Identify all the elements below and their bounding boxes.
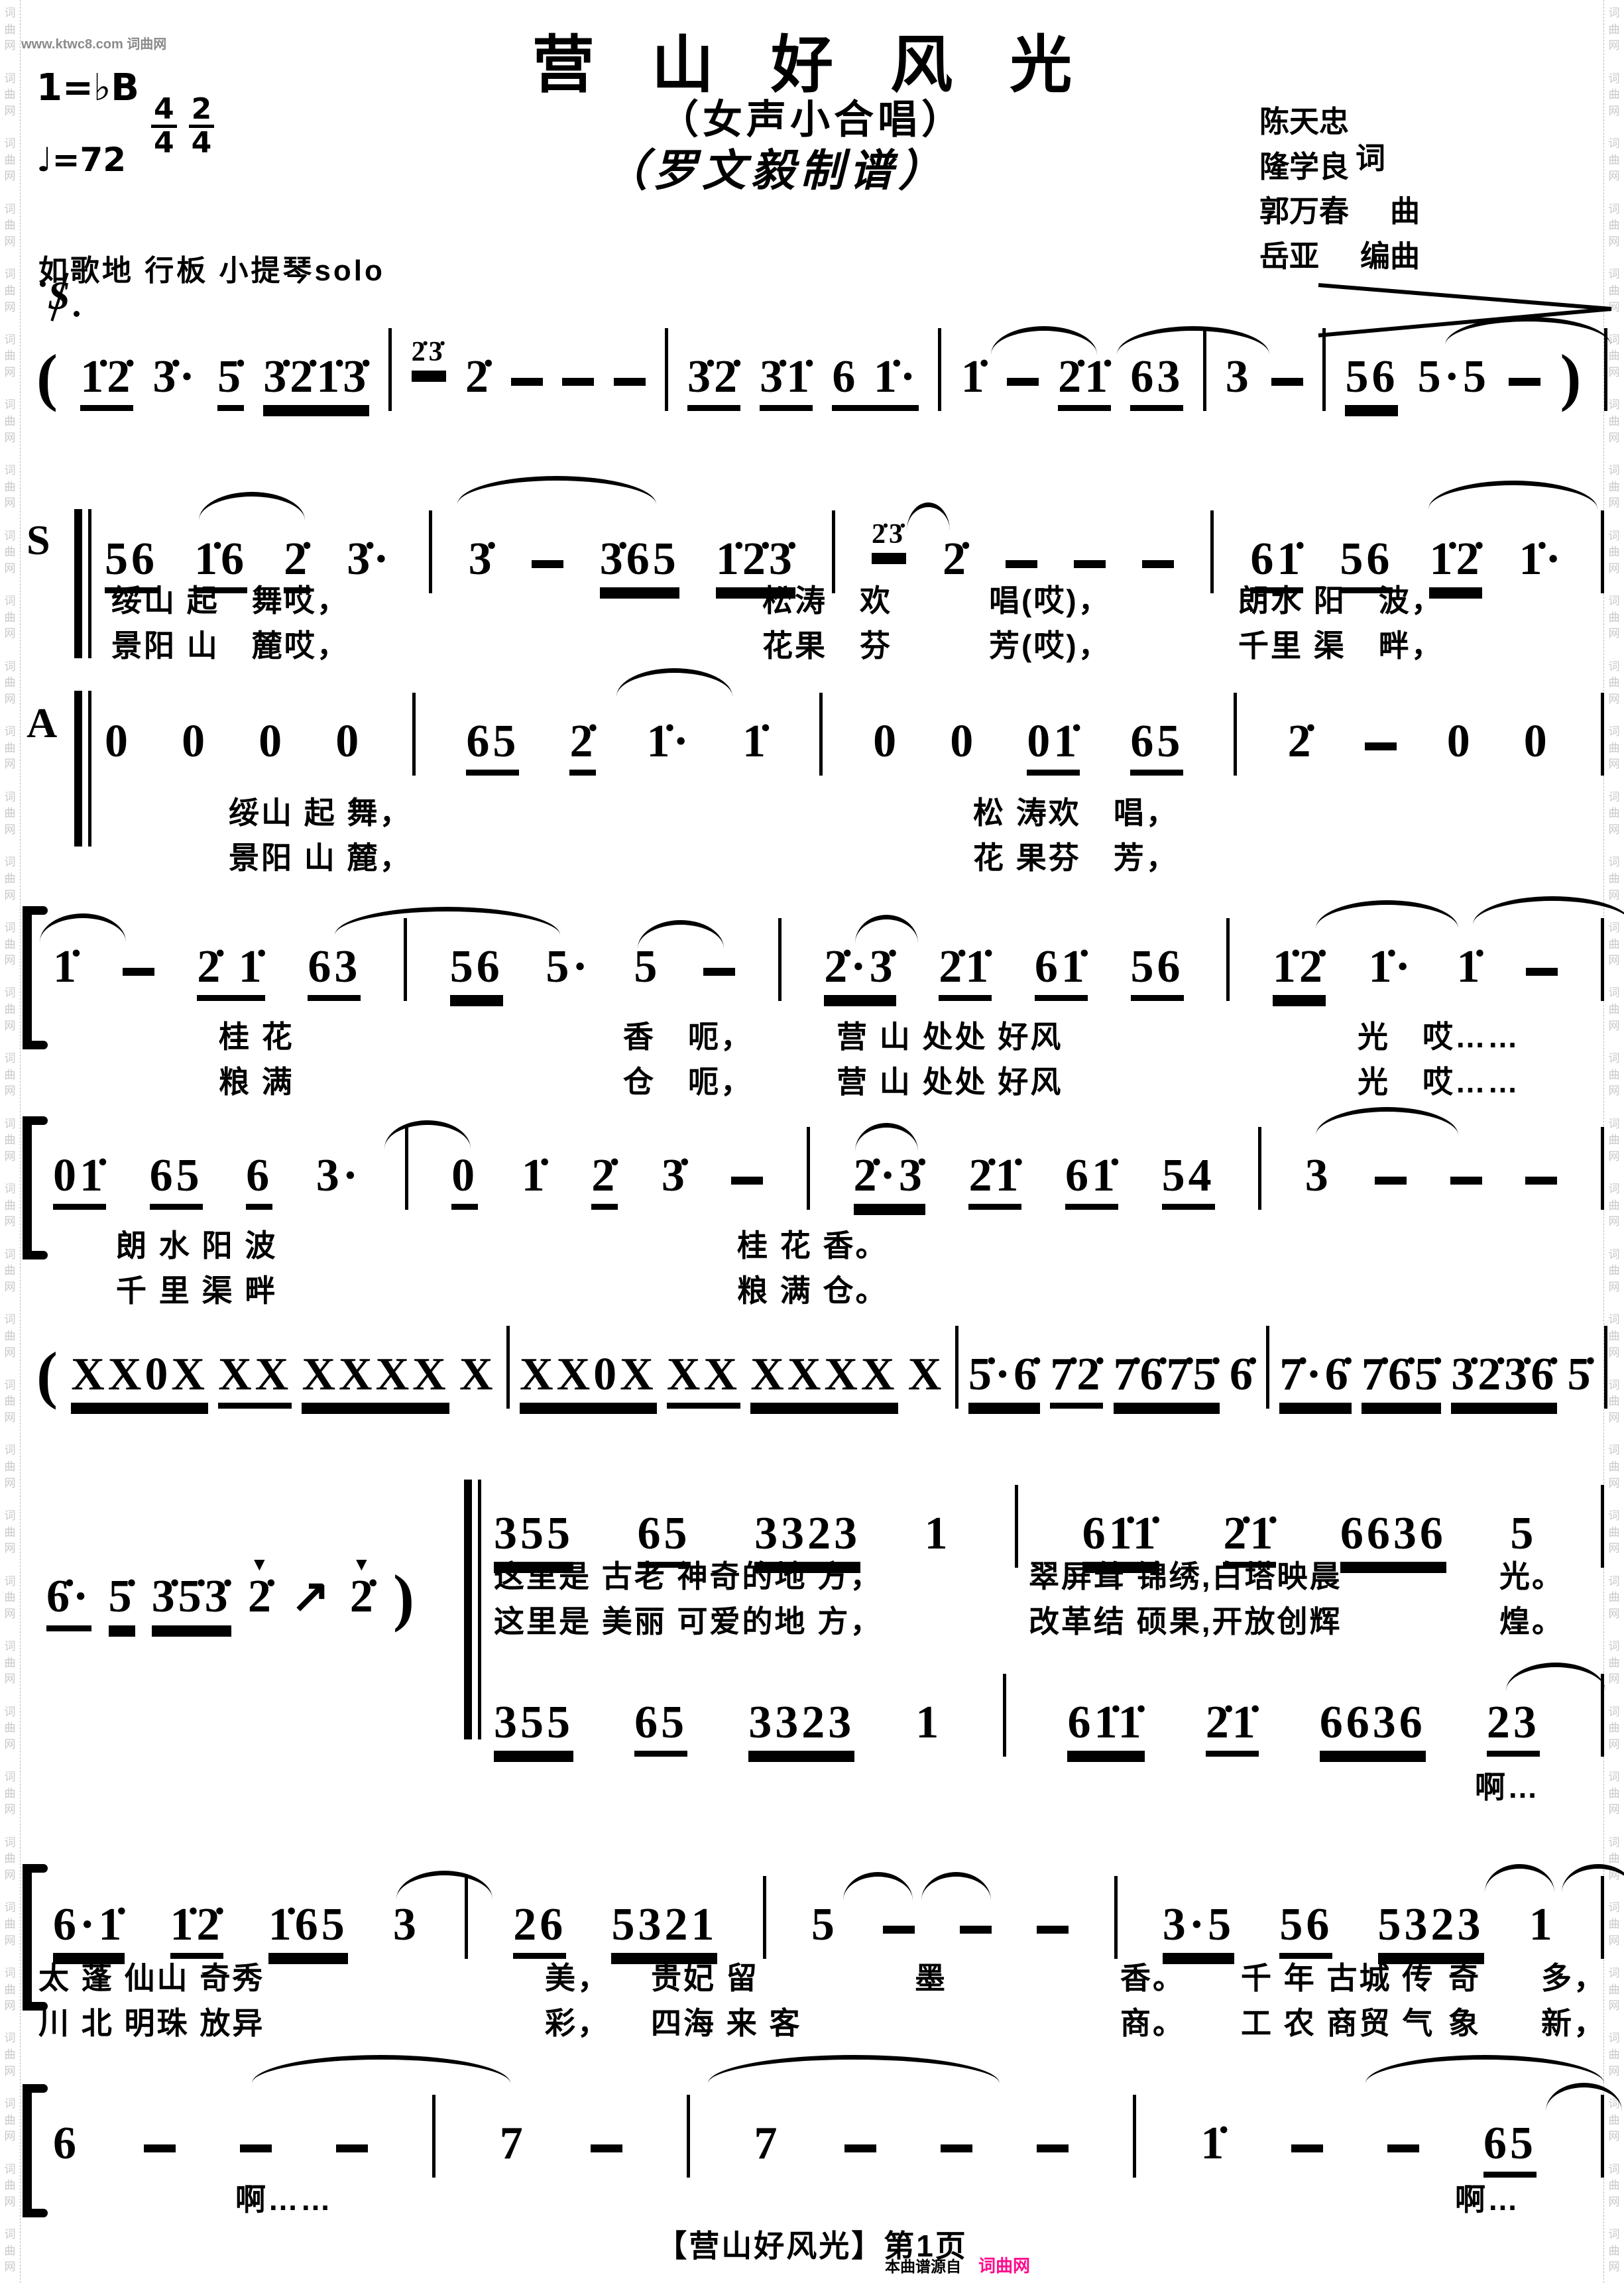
grace-note: 2̇3̇ [872, 520, 906, 559]
slur [457, 476, 656, 504]
barline [1133, 2095, 1136, 2178]
note-token: 65 [150, 1151, 203, 1210]
composer-name: 郭万春 [1259, 189, 1349, 234]
note-token: 2̇ [943, 535, 969, 594]
barline [465, 1876, 468, 1959]
lyric-segment: 这里是 美丽 可爱的地 方， [494, 1598, 882, 1641]
note-token: XX [667, 1350, 740, 1409]
lyric-segment: 香。 [1120, 1954, 1185, 1998]
note-token: 65 [1130, 717, 1183, 776]
note-token: 5̇ [109, 1572, 135, 1631]
note-token: 5·5 [1418, 353, 1489, 412]
note-token: 1̇ [53, 943, 80, 1002]
dash-rest [1509, 378, 1540, 386]
note-token: 3̇5̇3̇ [152, 1572, 231, 1631]
phrase-paren: ) [1560, 344, 1584, 411]
note-token: 61̇ [1035, 943, 1088, 1002]
note-token: 1̇65 [268, 1901, 348, 1960]
lyric-segment: 这里是 古老 神奇的地 方， [494, 1552, 882, 1596]
lyric-segment: 贵妃 留 [651, 1954, 759, 1998]
barline [819, 693, 823, 776]
note-token: 2̇1̇ [968, 1151, 1021, 1210]
note-token: 6 [246, 1151, 272, 1210]
arranger-role: 编曲 [1360, 234, 1420, 279]
source-prefix: 本曲谱源自 [885, 2258, 961, 2275]
music-line-interlude-end: 6̇·5̇3̇5̇3̇2̇↗2̇̇) [46, 1564, 418, 1631]
note-token: 3̇· [152, 353, 198, 412]
tempo-marking: ♩=72 [36, 141, 126, 179]
lyric-segment: 啊…… [235, 2176, 333, 2219]
lyric-segment: 改革结 硕果,开放创辉 [1029, 1598, 1342, 1641]
barline [1601, 1485, 1604, 1568]
note-token: 61̇1̇ [1067, 1698, 1144, 1757]
note-token: XX [218, 1350, 292, 1409]
note-token: 63 [1130, 353, 1183, 412]
system-bracket-s [74, 509, 91, 658]
barline [412, 693, 416, 776]
dash-rest [1271, 378, 1303, 386]
music-line-soprano-2: 1̇2̇ 1̇63565·52̇·3̇2̇1̇61̇561̇2̇1̇·1̇ [53, 918, 1604, 1001]
dash-rest [240, 2144, 272, 2152]
barline [1601, 1674, 1604, 1757]
note-token: 6·1̇ [53, 1901, 125, 1960]
barline [432, 2095, 435, 2178]
dash-rest [844, 2144, 876, 2152]
lyric-segment: 松 涛欢 唱， [973, 789, 1179, 833]
note-token: 7 [500, 2119, 526, 2178]
note-token: 5̇ [217, 353, 244, 412]
barline [388, 328, 392, 411]
note-token: ↗ [291, 1572, 333, 1631]
lyric-segment: 光 哎…… [1358, 1013, 1520, 1057]
note-token: 3̇1̇ [760, 353, 813, 412]
note-token: XX0X [71, 1350, 208, 1409]
dash-rest [532, 560, 563, 568]
barline [1601, 918, 1604, 1001]
note-token: XXXX [302, 1350, 449, 1409]
lyric-segment: 千 里 渠 畔 [116, 1267, 277, 1311]
segno-icon: S [41, 273, 81, 322]
lyric-segment: 绥山 起 舞哎， [111, 577, 349, 620]
note-token: 5323 [1378, 1901, 1484, 1960]
lyric-segment: 翠屏耸 锦绣,白塔映晨 [1029, 1552, 1342, 1596]
note-token: 1̇· [1368, 943, 1413, 1002]
segno-letter: S [48, 273, 70, 319]
dash-rest [1387, 2144, 1419, 2152]
note-token: 2̇ [248, 1572, 274, 1631]
dash-rest [144, 2144, 176, 2152]
lyric-segment: 芳(哎)， [989, 622, 1111, 666]
note-token: 23 [1487, 1698, 1540, 1757]
lyric-segment: 景阳 山 麓哎， [111, 622, 349, 666]
note-token: 7 [754, 2119, 781, 2178]
dash-rest [591, 2144, 622, 2152]
barline [1015, 1485, 1018, 1568]
note-token: 6̇ [1230, 1350, 1256, 1409]
dash-rest [562, 378, 594, 386]
note-token: X [459, 1350, 496, 1409]
arranger-name: 岳亚 [1259, 234, 1319, 279]
note-token: 7̇6̇5̇ [1362, 1350, 1441, 1409]
note-token: 5̇·6̇ [968, 1350, 1040, 1409]
barline [1114, 1876, 1118, 1959]
expression-marking: 如歌地 行板 小提琴solo [38, 247, 385, 289]
lyric-segment: 象 [1448, 1999, 1481, 2043]
note-token: 1 [925, 1509, 951, 1568]
note-token: 2̇1̇ [1206, 1698, 1259, 1757]
note-token: 3323 [748, 1698, 854, 1757]
lyric-segment: 川 北 明珠 放异 [38, 1999, 264, 2043]
grace-note: 2̇3̇ [412, 337, 446, 377]
slur [252, 2055, 510, 2083]
phrase-paren: ( [36, 1342, 61, 1409]
note-token: 2̇ [591, 1151, 618, 1210]
note-token: 65 [634, 1698, 687, 1757]
barline [763, 1876, 766, 1959]
source-brand: 词曲网 [978, 2256, 1030, 2276]
lyric-segment: 彩， [545, 1999, 610, 2043]
note-token: 2̇ 1̇ [197, 943, 265, 1002]
system-brace [23, 2089, 49, 2212]
note-token: 56 [450, 943, 503, 1002]
note-token: XXXX [750, 1350, 898, 1409]
phrase-paren: ) [393, 1564, 418, 1631]
left-watermark-strip: 词 曲 网 词 曲 网 词 曲 网 词 曲 网 词 曲 网 词 曲 网 词 曲 … [0, 0, 21, 2283]
lyric-segment: 煌。 [1499, 1598, 1564, 1641]
lyric-segment: 新， [1541, 1999, 1606, 2043]
note-token: 56 [1131, 943, 1184, 1002]
note-token: 54 [1162, 1151, 1215, 1210]
note-token: 0 [1447, 717, 1474, 776]
dash-rest [960, 1926, 992, 1934]
note-token: 1̇ [961, 353, 988, 412]
segno-dot [40, 281, 46, 287]
dash-rest [1291, 2144, 1323, 2152]
note-token: 3̇ [662, 1151, 688, 1210]
note-token: 0 [182, 717, 208, 776]
lyric-segment: 朗水 阳 波， [1238, 577, 1444, 620]
page-footer-label: 【营山好风光】第1页 [0, 2222, 1624, 2266]
barline [1003, 1674, 1006, 1757]
lyric-segment: 桂 花 [219, 1013, 294, 1057]
note-token: 2̇̇ [350, 1572, 377, 1631]
music-line-verse-c: 6·1̇1̇2̇1̇65326532153·55653231 [53, 1876, 1604, 1959]
note-token: 6636 [1340, 1509, 1446, 1568]
barline [687, 2095, 690, 2178]
lyric-segment: 啊… [1455, 2176, 1520, 2219]
barline [778, 918, 782, 1001]
note-token: 7̇6̇7̇5̇ [1114, 1350, 1220, 1409]
dash-rest [941, 2144, 972, 2152]
note-token: 2̇ [465, 353, 492, 412]
barline [429, 510, 432, 593]
phrase-paren: ( [36, 344, 61, 411]
dash-rest [1074, 560, 1106, 568]
lyric-segment: 工 农 商贸 气 [1241, 1999, 1434, 2043]
time-signature-1: 44 [151, 94, 177, 158]
dash-rest [1037, 1926, 1069, 1934]
lyricist-2: 隆学良 [1259, 145, 1349, 190]
note-token: 7̇·6̇ [1279, 1350, 1351, 1409]
source-credit: 本曲谱源自词曲网 [885, 2253, 1030, 2277]
barline [1604, 328, 1607, 411]
dash-rest [1375, 1177, 1407, 1185]
lyric-segment: 朗 水 阳 波 [116, 1222, 277, 1265]
note-token: 3·5 [1163, 1901, 1234, 1960]
barline [1226, 918, 1230, 1001]
note-token: 3̇2̇ [687, 353, 740, 412]
note-token: 1̇ [522, 1151, 548, 1210]
barline [955, 1326, 958, 1409]
note-token: 6 1̇· [832, 353, 919, 412]
note-token: 1̇2̇ [80, 353, 133, 412]
barline [1258, 1127, 1261, 1210]
lyricist-1: 陈天忠 [1259, 99, 1349, 145]
dash-rest [731, 1177, 763, 1185]
note-token: 355 [494, 1698, 573, 1757]
note-token: 5 [634, 943, 660, 1002]
barline [1601, 1876, 1604, 1959]
barline [1601, 2095, 1604, 2178]
lyric-segment: 光。 [1499, 1552, 1564, 1596]
lyric-segment: 千里 渠 畔， [1238, 622, 1444, 666]
voice-label-s: S [27, 516, 50, 565]
lyric-segment: 营 山 处处 好风 [837, 1013, 1063, 1057]
voice-label-a: A [27, 699, 57, 748]
note-token: 1 [1529, 1901, 1556, 1960]
dash-rest [1007, 378, 1039, 386]
note-token: 0 [1524, 717, 1550, 776]
barline [665, 328, 668, 411]
note-token: 3 [393, 1901, 420, 1960]
system-bracket-a [74, 691, 91, 847]
barline [404, 918, 407, 1001]
note-token: 3̇ [469, 535, 495, 594]
note-token: 26 [513, 1901, 566, 1960]
lyric-segment: 唱(哎)， [989, 577, 1111, 620]
lyric-segment: 花 果芬 芳， [973, 834, 1179, 878]
dash-rest [1037, 2144, 1069, 2152]
barline [1601, 1127, 1604, 1210]
segno-dot [74, 311, 80, 317]
barline [938, 328, 941, 411]
note-token: 2̇1̇ [939, 943, 992, 1002]
barline [1266, 1326, 1269, 1409]
lyric-segment: 多， [1541, 1954, 1606, 1998]
note-token: 65 [1483, 2119, 1537, 2178]
lyric-segment: 啊… [1475, 1763, 1540, 1807]
note-token: 3 [1226, 353, 1252, 412]
credits-block: 陈天忠 隆学良 词 郭万春 曲 岳亚 编曲 [1259, 99, 1458, 278]
note-token: 1̇2̇ [1273, 943, 1326, 1002]
note-token: 2̇·3̇ [824, 943, 896, 1002]
lyric-segment: 粮 满 [219, 1058, 294, 1102]
music-line-verse-b: 355653323161̇1̇2̇1̇663623 [494, 1674, 1604, 1757]
dash-rest [336, 2144, 368, 2152]
music-line-intro: (1̇2̇3̇·5̇3̇2̇1̇3̇2̇3̇2̇3̇2̇3̇1̇6 1̇·1̇2… [36, 328, 1607, 411]
lyric-segment: 仓 呃， [623, 1058, 753, 1102]
note-token: 1̇ [1200, 2119, 1227, 2178]
note-token: 6636 [1320, 1698, 1426, 1757]
note-token: 3̇· [347, 535, 392, 594]
lyric-segment: 香 呃， [623, 1013, 753, 1057]
dash-rest [1365, 742, 1397, 750]
lyric-segment: 奇 [1448, 1954, 1481, 1998]
note-token: 1̇ [1456, 943, 1483, 1002]
note-token: 0 [950, 717, 976, 776]
time-signature-2: 24 [189, 94, 215, 158]
note-token: 3̇2̇3̇6̇ [1451, 1350, 1557, 1409]
dash-rest [614, 378, 646, 386]
lyric-segment: 花果 芬 [762, 622, 892, 666]
lyric-segment: 太 蓬 仙山 奇秀 [38, 1954, 264, 1998]
lyric-segment: 松涛 欢 [762, 577, 892, 620]
slur [1428, 481, 1597, 509]
note-token: 5· [546, 943, 591, 1002]
note-token: 0 [335, 717, 362, 776]
barline [1604, 1326, 1607, 1409]
note-token: 3̇2̇1̇3̇ [263, 353, 369, 412]
note-token: X [908, 1350, 945, 1409]
note-token: 5̇ [1568, 1350, 1594, 1409]
dash-rest [1526, 968, 1558, 976]
note-token: 3· [316, 1151, 361, 1210]
music-line-percussion: (XX0XXXXXXXXXX0XXXXXXXX5̇·6̇7̇2̇7̇6̇7̇5̇… [36, 1326, 1607, 1409]
dash-rest [123, 968, 154, 976]
music-line-finale: 6771̇65 [53, 2095, 1604, 2178]
note-token: 0 [105, 717, 131, 776]
note-token: 1̇· [1519, 535, 1564, 594]
note-token: 0 [873, 717, 899, 776]
barline [1234, 693, 1237, 776]
lyric-segment: 绥山 起 舞， [229, 789, 412, 833]
barline [1601, 510, 1604, 593]
barline [1322, 328, 1326, 411]
dash-rest [1142, 560, 1174, 568]
lyric-segment: 粮 满 仓。 [737, 1267, 888, 1311]
slur [708, 2055, 1000, 2083]
sheet-music-page: 词 曲 网 词 曲 网 词 曲 网 词 曲 网 词 曲 网 词 曲 网 词 曲 … [0, 0, 1624, 2283]
note-token: 5321 [611, 1901, 717, 1960]
barline [506, 1326, 510, 1409]
note-token: 6̇· [46, 1572, 91, 1631]
slur [1365, 2055, 1604, 2083]
note-token: 1̇· [647, 717, 692, 776]
lyric-segment: 桂 花 香。 [737, 1222, 888, 1265]
lyric-segment: 光 哎…… [1358, 1058, 1520, 1102]
note-token: 1 [915, 1698, 942, 1757]
key-text: 1=♭B [36, 66, 139, 109]
composer-role: 曲 [1390, 189, 1420, 234]
barline [1210, 510, 1214, 593]
lyric-segment: 商。 [1120, 1999, 1185, 2043]
note-token: 3 [1305, 1151, 1332, 1210]
music-line-alto: 0000652̇1̇·1̇0001̇652̇00 [105, 693, 1604, 776]
lyricist-role: 词 [1356, 134, 1385, 177]
music-line-alto-2: 01̇6563·01̇2̇3̇2̇·3̇2̇1̇61̇543 [53, 1127, 1604, 1210]
note-token: 01̇ [53, 1151, 106, 1210]
barline [807, 1127, 810, 1210]
barline [405, 1127, 408, 1210]
dash-rest [511, 378, 543, 386]
lyric-segment: 景阳 山 麓， [229, 834, 412, 878]
note-token: 6 [53, 2119, 80, 2178]
dash-rest [1450, 1177, 1482, 1185]
note-token: 56 [1345, 353, 1398, 412]
system-bracket-verse [464, 1480, 481, 1739]
note-token: 2̇ [1288, 717, 1314, 776]
note-token: 1̇2̇ [170, 1901, 223, 1960]
dash-rest [883, 1926, 915, 1934]
note-token: 65 [466, 717, 519, 776]
system-brace [23, 1122, 49, 1254]
note-token: 3̇65 [600, 535, 679, 594]
note-token: 63 [308, 943, 361, 1002]
note-token: 2̇1̇ [1058, 353, 1111, 412]
note-token: 5 [811, 1901, 838, 1960]
dash-rest [703, 968, 735, 976]
lyric-segment: 墨 [915, 1954, 947, 1998]
note-token: 61̇ [1065, 1151, 1118, 1210]
lyric-segment: 美， [545, 1954, 610, 1998]
dash-rest [1525, 1177, 1557, 1185]
lyric-segment: 营 山 处处 好风 [837, 1058, 1063, 1102]
note-token: 7̇2̇ [1050, 1350, 1103, 1409]
note-token: 56 [1279, 1901, 1332, 1960]
note-token: 0 [259, 717, 285, 776]
dash-rest [1006, 560, 1037, 568]
lyric-segment: 四海 来 客 [651, 1999, 802, 2043]
lyric-segment: 千 年 古城 传 [1241, 1954, 1434, 1998]
note-token: 2̇·3̇ [854, 1151, 925, 1210]
barline [1203, 328, 1206, 411]
note-token: XX0X [520, 1350, 657, 1409]
note-token: 2̇ [569, 717, 596, 776]
note-token: 1̇ [742, 717, 769, 776]
note-token: 01̇ [1027, 717, 1080, 776]
note-token: 0 [451, 1151, 478, 1210]
barline [1601, 693, 1604, 776]
